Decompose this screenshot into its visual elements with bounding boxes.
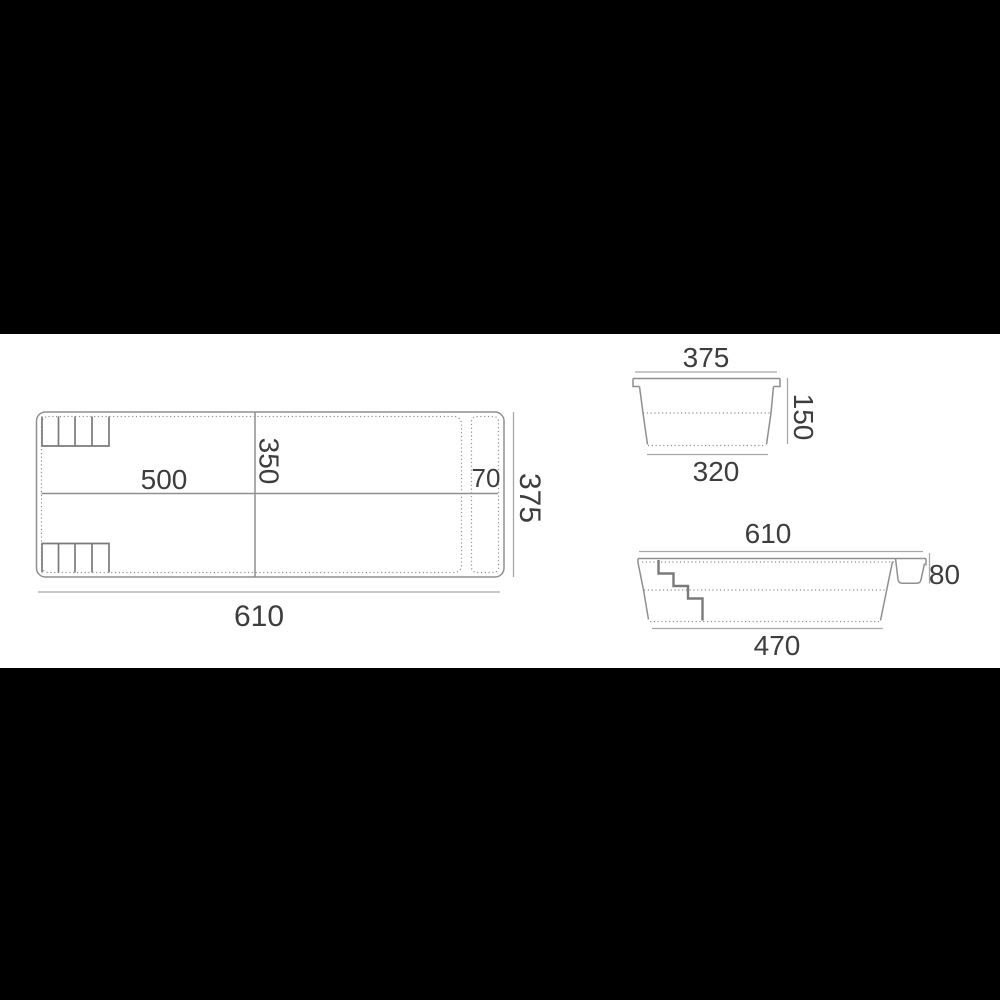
plan-label-inner-length: 500 [141,464,188,495]
side-label-shallow-depth: 80 [929,559,960,590]
side-label-top-length: 610 [745,518,792,549]
dimension-labels: 500 350 70 375 610 375 150 320 610 80 47… [141,342,960,661]
side-section-wall-left [638,559,649,620]
plan-end-bench-dotted [472,417,499,573]
side-section-end-bench-box [896,559,925,584]
plan-inner-pool-dotted [42,417,462,573]
side-section-staircase-profile [659,560,703,621]
screenshot-root: 500 350 70 375 610 375 150 320 610 80 47… [0,0,1000,1000]
plan-label-bench-width: 70 [472,463,501,493]
plan-entry-steps-top [42,417,109,447]
plan-label-overall-length: 610 [234,600,284,633]
letterbox-bottom [0,668,1000,1000]
side-section-wall-right [881,562,893,621]
end-label-top-width: 375 [683,342,730,373]
end-label-bottom-width: 320 [693,456,740,487]
plan-entry-steps-bottom [42,544,109,573]
side-label-bottom-length: 470 [754,630,801,661]
end-section-wall-right [767,387,774,445]
plan-label-overall-width: 375 [513,473,546,523]
end-section-rim-left [633,379,640,387]
end-label-depth: 150 [788,394,819,441]
plan-label-inner-width: 350 [254,438,285,485]
end-section-wall-left [640,387,648,445]
letterbox-top [0,0,1000,334]
pool-dimension-drawing: 500 350 70 375 610 375 150 320 610 80 47… [0,0,1000,1000]
end-section-rim-right [774,379,781,387]
step-linework [42,417,703,621]
